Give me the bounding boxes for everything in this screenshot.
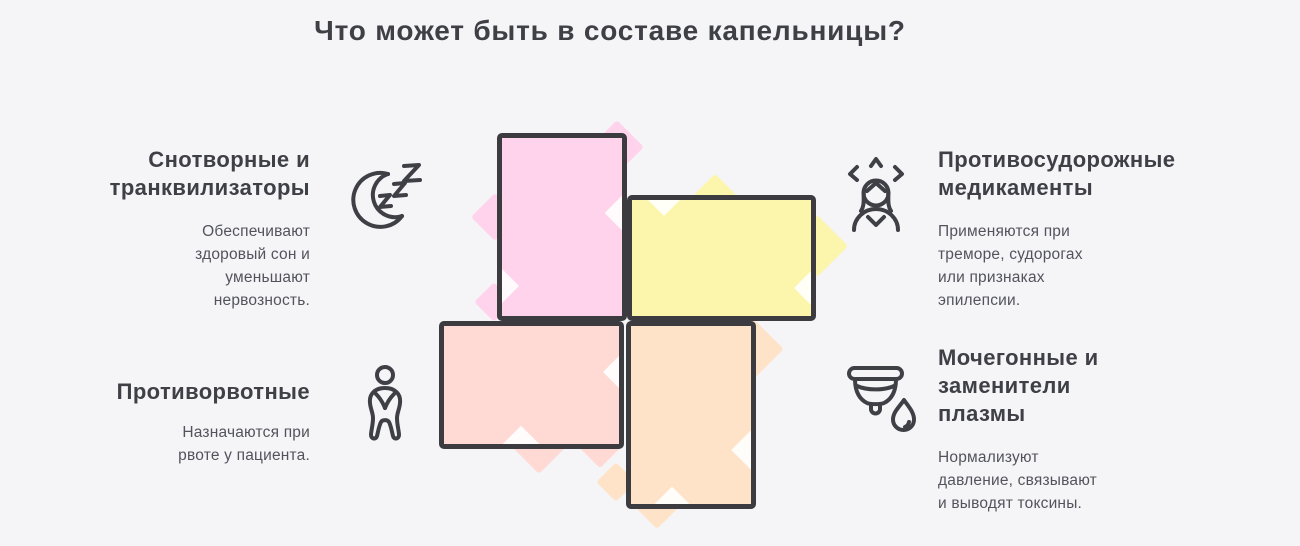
cross-cell-diuretics bbox=[626, 321, 756, 509]
item-anticonvulsants-description: Применяются при треморе, судорогах или п… bbox=[938, 220, 1223, 312]
item-sedatives: Снотворные и транквилизаторы Обеспечиваю… bbox=[70, 146, 310, 312]
scribble-gap bbox=[503, 426, 540, 449]
scribble-gap bbox=[497, 269, 519, 303]
scribble-gap bbox=[603, 355, 624, 389]
item-antiemetics-heading: Противорвотные bbox=[70, 378, 310, 406]
item-diuretics-description: Нормализуют давление, связывают и выводя… bbox=[938, 446, 1223, 515]
nausea-person-icon bbox=[358, 364, 412, 444]
infographic-canvas: Что может быть в составе капельницы? Сно… bbox=[0, 0, 1300, 546]
moon-zzz-icon bbox=[338, 158, 428, 240]
tremor-person-icon bbox=[845, 156, 907, 238]
cross-cell-sedatives bbox=[497, 133, 627, 321]
scribble-gap bbox=[605, 195, 627, 232]
item-antiemetics-description: Назначаются при рвоте у пациента. bbox=[70, 421, 310, 467]
page-title: Что может быть в составе капельницы? bbox=[0, 14, 1220, 48]
item-sedatives-description: Обеспечивают здоровый сон и уменьшают не… bbox=[70, 220, 310, 312]
item-anticonvulsants: Противосудорожные медикаменты Применяютс… bbox=[938, 146, 1223, 312]
item-diuretics: Мочегонные и заменители плазмы Нормализу… bbox=[938, 344, 1223, 515]
scribble-gap bbox=[731, 430, 756, 470]
item-antiemetics: Противорвотные Назначаются при рвоте у п… bbox=[70, 378, 310, 467]
scribble-gap bbox=[794, 271, 816, 305]
cross-cell-antiemetics bbox=[439, 321, 624, 449]
item-diuretics-heading: Мочегонные и заменители плазмы bbox=[938, 344, 1223, 428]
item-anticonvulsants-heading: Противосудорожные медикаменты bbox=[938, 146, 1223, 202]
cross-cell-anticonvulsants bbox=[627, 195, 816, 321]
scribble-gap bbox=[647, 195, 681, 216]
cup-drop-icon bbox=[843, 358, 923, 448]
item-sedatives-heading: Снотворные и транквилизаторы bbox=[70, 146, 310, 202]
scribble-gap bbox=[654, 487, 691, 509]
